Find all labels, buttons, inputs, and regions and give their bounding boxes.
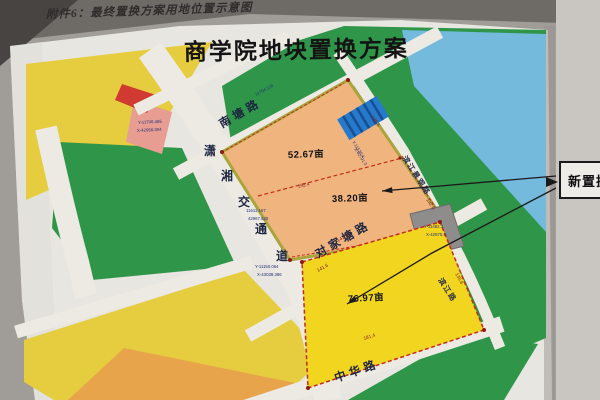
coord-text: 42967.625 — [248, 216, 269, 221]
parcel-area-52-67: 52.67亩 — [288, 148, 325, 161]
coord-text: Y-11150.064 — [255, 264, 279, 269]
road-char: 道 — [276, 248, 288, 263]
road-char: 通 — [255, 221, 267, 236]
road-char: 交 — [238, 194, 250, 209]
road-char: 湘 — [221, 168, 233, 183]
parcel-area-38-20: 38.20亩 — [332, 192, 369, 205]
second-page-edge — [556, 0, 600, 400]
coord-text: 11611.167 — [246, 208, 266, 213]
callout-label: 新置换地块 — [568, 174, 600, 189]
coord-text: Y-11482.3 — [424, 224, 444, 229]
photo-of-plan-document: 附件6：最终置换方案用地位置示意图 商学院地块置换方案 南塘路 潇 湘 — [0, 0, 600, 400]
road-char: 潇 — [204, 143, 216, 158]
map-title: 商学院地块置换方案 — [184, 35, 409, 65]
coord-text: X-43038.386 — [257, 272, 282, 277]
coord-text: X-42875.5 — [426, 232, 446, 237]
plan-map-photo: 附件6：最终置换方案用地位置示意图 商学院地块置换方案 南塘路 潇 湘 — [0, 0, 600, 400]
